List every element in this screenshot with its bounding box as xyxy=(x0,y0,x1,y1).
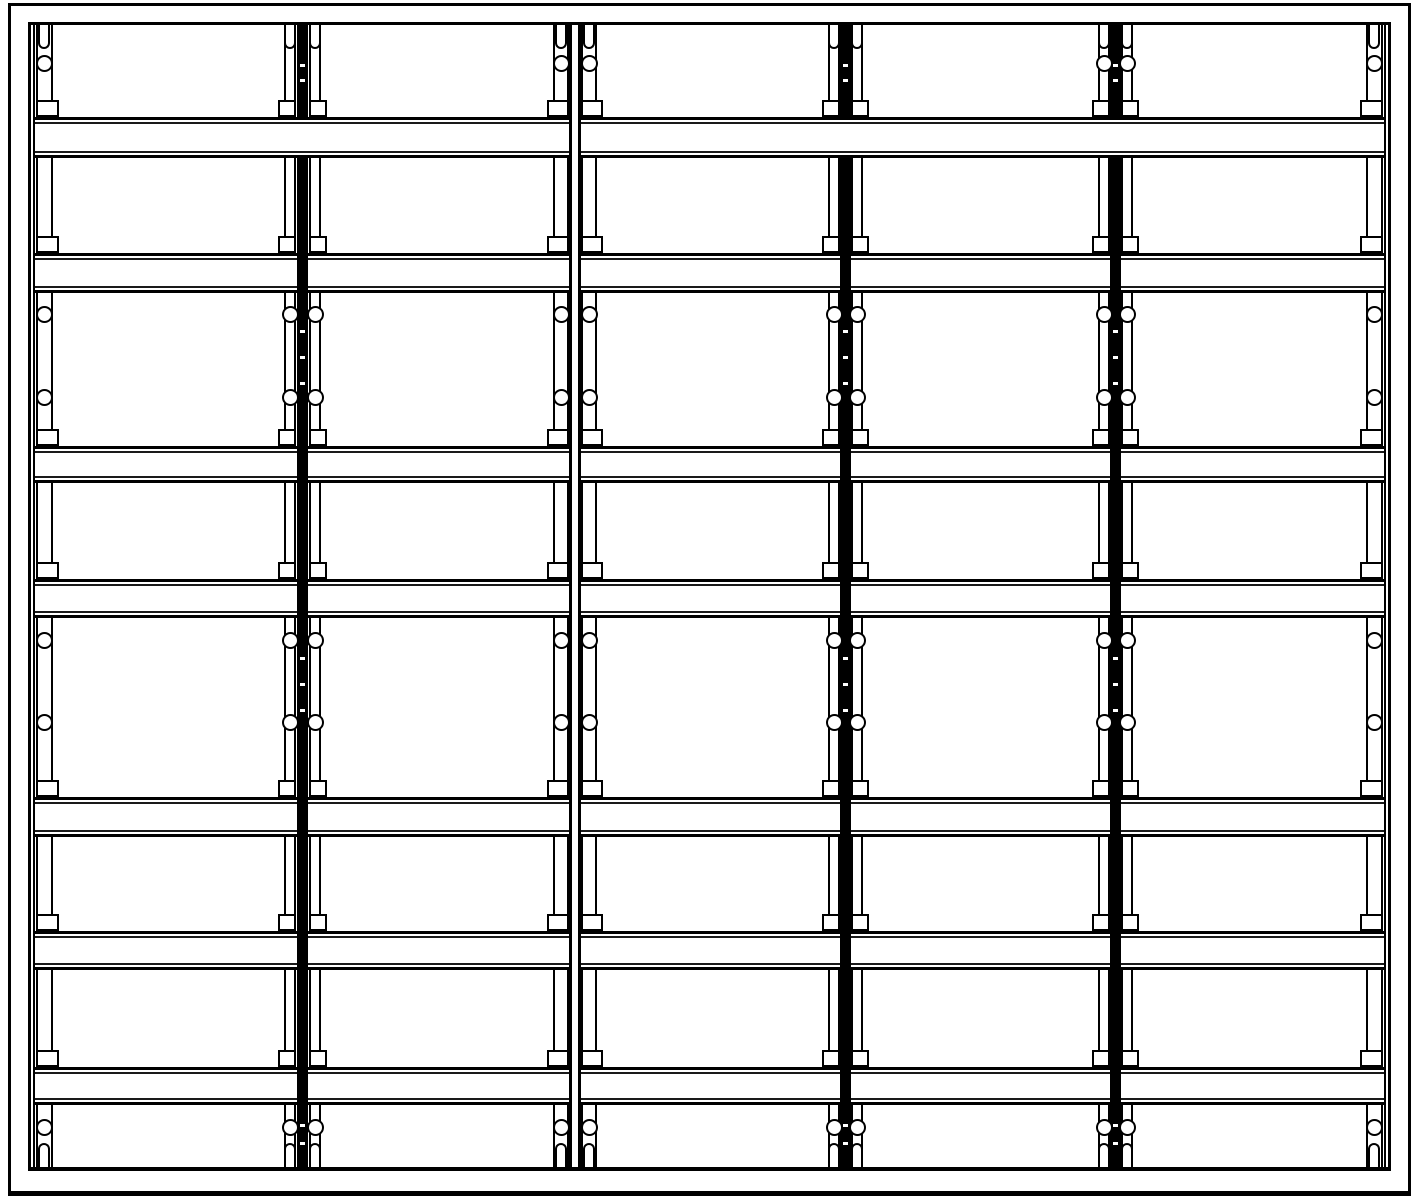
pin-hole-circle xyxy=(1096,389,1113,406)
beam-clip-notch xyxy=(851,780,869,797)
keyhole-slot-top xyxy=(828,25,840,49)
beam-clip-notch xyxy=(851,562,869,579)
beam-clip-notch xyxy=(851,1050,869,1067)
beam-clip-notch xyxy=(822,780,840,797)
keyhole-slot-bottom xyxy=(284,1143,296,1167)
pin-hole-circle xyxy=(1366,389,1383,406)
beam-clip-notch xyxy=(278,562,296,579)
pin-hole-circle xyxy=(826,632,843,649)
beam-clip-notch xyxy=(1360,780,1383,797)
shelf-beam-segment xyxy=(851,446,1110,483)
bar-tick-mark xyxy=(843,709,848,712)
bar-tick-mark xyxy=(1113,657,1118,660)
bar-tick-mark xyxy=(1113,683,1118,686)
bar-tick-mark xyxy=(843,382,848,385)
pin-hole-circle xyxy=(307,714,324,731)
beam-clip-notch xyxy=(1360,236,1383,253)
beam-clip-notch xyxy=(547,236,569,253)
shelf-beam-segment xyxy=(308,579,570,618)
shelf-beam-segment xyxy=(580,931,840,970)
pin-hole-circle xyxy=(1119,632,1136,649)
divider-upright-bar xyxy=(297,158,308,1167)
beam-clip-notch xyxy=(1121,780,1139,797)
keyhole-slot-top xyxy=(1121,25,1133,49)
beam-clip-notch xyxy=(309,429,327,446)
pin-hole-circle xyxy=(581,714,598,731)
pin-hole-circle xyxy=(826,306,843,323)
beam-clip-notch xyxy=(1360,562,1383,579)
beam-clip-notch xyxy=(581,562,603,579)
beam-clip-notch xyxy=(547,780,569,797)
beam-clip-notch xyxy=(309,100,327,117)
bar-tick-mark xyxy=(300,1124,305,1127)
shelf-beam-segment xyxy=(851,1067,1110,1105)
pin-hole-circle xyxy=(581,632,598,649)
pin-hole-circle xyxy=(307,632,324,649)
beam-clip-notch xyxy=(547,562,569,579)
pin-hole-circle xyxy=(1366,306,1383,323)
shelf-beam-segment xyxy=(308,797,570,837)
beam-clip-notch xyxy=(1092,429,1110,446)
shelf-beam-segment xyxy=(1121,446,1386,483)
pin-hole-circle xyxy=(553,714,570,731)
bar-tick-mark xyxy=(1113,356,1118,359)
beam-clip-notch xyxy=(1092,562,1110,579)
beam-clip-notch xyxy=(36,1050,59,1067)
beam-clip-notch xyxy=(581,914,603,931)
beam-clip-notch xyxy=(36,100,59,117)
beam-clip-notch xyxy=(1092,100,1110,117)
bar-tick-mark xyxy=(843,1124,848,1127)
beam-clip-notch xyxy=(581,780,603,797)
pin-hole-circle xyxy=(36,1119,53,1136)
bar-tick-mark xyxy=(843,79,848,82)
rack-frame-bottom-rail xyxy=(28,1167,1391,1171)
beam-clip-notch xyxy=(1092,914,1110,931)
beam-clip-notch xyxy=(1121,236,1139,253)
beam-clip-notch xyxy=(1092,236,1110,253)
shelf-beam-segment xyxy=(580,797,840,837)
pin-hole-circle xyxy=(282,389,299,406)
shelf-beam-segment xyxy=(851,797,1110,837)
bar-tick-mark xyxy=(1113,1142,1118,1145)
beam-clip-notch xyxy=(278,780,296,797)
beam-clip-notch xyxy=(1360,100,1383,117)
shelf-beam-segment xyxy=(308,253,570,293)
beam-clip-notch xyxy=(36,562,59,579)
pin-hole-circle xyxy=(1119,1119,1136,1136)
divider-upright-bar xyxy=(1110,25,1121,117)
beam-clip-notch xyxy=(822,236,840,253)
keyhole-slot-top xyxy=(1368,25,1380,49)
beam-clip-notch xyxy=(1092,780,1110,797)
shelf-beam-segment xyxy=(580,446,840,483)
pin-hole-circle xyxy=(282,306,299,323)
upright-spine-line xyxy=(1384,22,1386,1171)
pin-hole-circle xyxy=(553,632,570,649)
keyhole-slot-top xyxy=(555,25,567,49)
beam-clip-notch xyxy=(278,914,296,931)
beam-clip-notch xyxy=(581,236,603,253)
shelf-beam-segment xyxy=(851,931,1110,970)
bar-tick-mark xyxy=(300,64,305,67)
beam-clip-notch xyxy=(309,780,327,797)
shelf-beam-segment xyxy=(851,253,1110,293)
pin-hole-circle xyxy=(36,389,53,406)
pin-hole-circle xyxy=(1366,632,1383,649)
pin-hole-circle xyxy=(581,389,598,406)
shelf-beam-segment xyxy=(1121,1067,1386,1105)
beam-clip-notch xyxy=(822,562,840,579)
pin-hole-circle xyxy=(1096,632,1113,649)
beam-clip-notch xyxy=(309,1050,327,1067)
beam-clip-notch xyxy=(1360,914,1383,931)
bar-tick-mark xyxy=(1113,79,1118,82)
beam-clip-notch xyxy=(851,100,869,117)
bar-tick-mark xyxy=(300,330,305,333)
shelf-beam-segment xyxy=(1121,253,1386,293)
beam-clip-notch xyxy=(547,429,569,446)
pin-hole-circle xyxy=(553,389,570,406)
beam-clip-notch xyxy=(1121,914,1139,931)
beam-clip-notch xyxy=(36,236,59,253)
seam-line xyxy=(569,22,572,1171)
beam-clip-notch xyxy=(822,429,840,446)
beam-clip-notch xyxy=(36,429,59,446)
pin-hole-circle xyxy=(849,389,866,406)
pin-hole-circle xyxy=(1096,55,1113,72)
pin-hole-circle xyxy=(1119,55,1136,72)
keyhole-slot-bottom xyxy=(1368,1143,1380,1167)
beam-clip-notch xyxy=(1360,1050,1383,1067)
bar-tick-mark xyxy=(1113,64,1118,67)
bar-tick-mark xyxy=(1113,709,1118,712)
keyhole-slot-bottom xyxy=(38,1143,50,1167)
bar-tick-mark xyxy=(1113,382,1118,385)
upright-spine-line xyxy=(28,22,31,1171)
beam-clip-notch xyxy=(581,1050,603,1067)
pin-hole-circle xyxy=(553,55,570,72)
bar-tick-mark xyxy=(300,709,305,712)
pin-hole-circle xyxy=(1366,55,1383,72)
pin-hole-circle xyxy=(581,1119,598,1136)
pin-hole-circle xyxy=(307,1119,324,1136)
keyhole-slot-top xyxy=(1098,25,1110,49)
pin-hole-circle xyxy=(553,1119,570,1136)
pin-hole-circle xyxy=(307,306,324,323)
beam-clip-notch xyxy=(278,1050,296,1067)
pin-hole-circle xyxy=(1096,714,1113,731)
beam-clip-notch xyxy=(1121,100,1139,117)
bar-tick-mark xyxy=(300,657,305,660)
beam-clip-notch xyxy=(822,100,840,117)
upright-spine-line xyxy=(33,22,35,1171)
pin-hole-circle xyxy=(849,714,866,731)
shelf-beam-segment xyxy=(33,797,297,837)
shelf-beam-segment xyxy=(308,446,570,483)
shelf-beam-segment xyxy=(308,1067,570,1105)
beam-clip-notch xyxy=(36,780,59,797)
pin-hole-circle xyxy=(307,389,324,406)
pin-hole-circle xyxy=(849,1119,866,1136)
drawing-canvas xyxy=(0,0,1419,1200)
divider-upright-bar xyxy=(840,25,851,117)
pin-hole-circle xyxy=(826,1119,843,1136)
bar-tick-mark xyxy=(843,64,848,67)
beam-clip-notch xyxy=(1121,429,1139,446)
beam-clip-notch xyxy=(1121,562,1139,579)
shelf-beam-segment xyxy=(33,446,297,483)
shelf-beam-segment xyxy=(1121,579,1386,618)
keyhole-slot-bottom xyxy=(1098,1143,1110,1167)
shelf-beam-segment xyxy=(851,579,1110,618)
pin-hole-circle xyxy=(826,714,843,731)
beam-clip-notch xyxy=(36,914,59,931)
pin-hole-circle xyxy=(1119,306,1136,323)
shelf-beam-segment xyxy=(33,253,297,293)
rack-frame-top-rail xyxy=(28,22,1391,25)
bar-tick-mark xyxy=(843,683,848,686)
keyhole-slot-top xyxy=(38,25,50,49)
upright-spine-line xyxy=(1388,22,1391,1171)
shelf-beam-segment xyxy=(33,579,297,618)
shelf-beam-segment xyxy=(308,931,570,970)
keyhole-slot-top xyxy=(284,25,296,49)
bar-tick-mark xyxy=(300,683,305,686)
keyhole-slot-bottom xyxy=(555,1143,567,1167)
keyhole-slot-bottom xyxy=(851,1143,863,1167)
beam-clip-notch xyxy=(1360,429,1383,446)
beam-clip-notch xyxy=(851,236,869,253)
beam-clip-notch xyxy=(278,429,296,446)
beam-clip-notch xyxy=(1121,1050,1139,1067)
beam-clip-notch xyxy=(581,100,603,117)
pin-hole-circle xyxy=(36,714,53,731)
beam-clip-notch xyxy=(851,429,869,446)
bar-tick-mark xyxy=(1113,330,1118,333)
bar-tick-mark xyxy=(843,1142,848,1145)
keyhole-slot-bottom xyxy=(309,1143,321,1167)
beam-clip-notch xyxy=(547,1050,569,1067)
beam-clip-notch xyxy=(309,562,327,579)
beam-clip-notch xyxy=(309,236,327,253)
beam-clip-notch xyxy=(278,236,296,253)
pin-hole-circle xyxy=(849,632,866,649)
beam-clip-notch xyxy=(851,914,869,931)
shelf-beam-segment xyxy=(33,1067,297,1105)
beam-clip-notch xyxy=(581,429,603,446)
bar-tick-mark xyxy=(300,79,305,82)
beam-clip-notch xyxy=(309,914,327,931)
shelf-beam-segment xyxy=(580,117,1386,158)
keyhole-slot-bottom xyxy=(583,1143,595,1167)
keyhole-slot-top xyxy=(851,25,863,49)
beam-clip-notch xyxy=(278,100,296,117)
keyhole-slot-top xyxy=(583,25,595,49)
divider-upright-bar xyxy=(297,25,308,117)
pin-hole-circle xyxy=(36,632,53,649)
pin-hole-circle xyxy=(1119,389,1136,406)
pin-hole-circle xyxy=(1096,1119,1113,1136)
shelf-beam-segment xyxy=(580,579,840,618)
pin-hole-circle xyxy=(1119,714,1136,731)
bar-tick-mark xyxy=(843,330,848,333)
beam-clip-notch xyxy=(547,914,569,931)
shelf-beam-segment xyxy=(580,1067,840,1105)
keyhole-slot-top xyxy=(309,25,321,49)
shelf-beam-segment xyxy=(1121,931,1386,970)
pin-hole-circle xyxy=(849,306,866,323)
bar-tick-mark xyxy=(300,382,305,385)
bar-tick-mark xyxy=(843,356,848,359)
pin-hole-circle xyxy=(1096,306,1113,323)
beam-clip-notch xyxy=(822,914,840,931)
beam-clip-notch xyxy=(1092,1050,1110,1067)
pin-hole-circle xyxy=(826,389,843,406)
shelf-beam-segment xyxy=(580,253,840,293)
pin-hole-circle xyxy=(36,55,53,72)
pin-hole-circle xyxy=(581,306,598,323)
pin-hole-circle xyxy=(282,632,299,649)
keyhole-slot-bottom xyxy=(1121,1143,1133,1167)
pin-hole-circle xyxy=(1366,714,1383,731)
pin-hole-circle xyxy=(36,306,53,323)
beam-clip-notch xyxy=(822,1050,840,1067)
pin-hole-circle xyxy=(282,1119,299,1136)
beam-clip-notch xyxy=(547,100,569,117)
bar-tick-mark xyxy=(843,657,848,660)
bar-tick-mark xyxy=(300,1142,305,1145)
bar-tick-mark xyxy=(300,356,305,359)
pin-hole-circle xyxy=(553,306,570,323)
pin-hole-circle xyxy=(282,714,299,731)
pin-hole-circle xyxy=(1366,1119,1383,1136)
shelf-beam-segment xyxy=(1121,797,1386,837)
keyhole-slot-bottom xyxy=(828,1143,840,1167)
pin-hole-circle xyxy=(581,55,598,72)
shelf-beam-segment xyxy=(33,931,297,970)
bar-tick-mark xyxy=(1113,1124,1118,1127)
shelf-beam-segment xyxy=(33,117,570,158)
